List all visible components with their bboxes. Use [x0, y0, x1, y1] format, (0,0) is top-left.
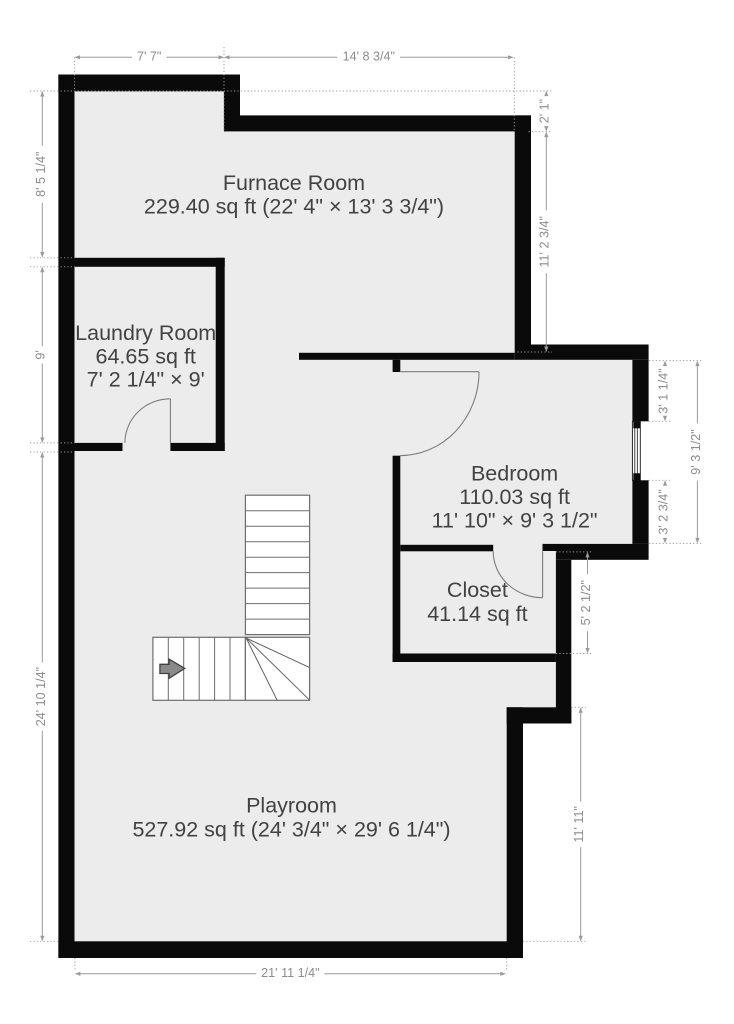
- svg-text:3' 2 3/4": 3' 2 3/4": [656, 489, 670, 534]
- svg-text:7' 7": 7' 7": [137, 50, 161, 64]
- svg-text:11' 10" × 9' 3 1/2": 11' 10" × 9' 3 1/2": [432, 508, 598, 532]
- svg-text:Bedroom: Bedroom: [471, 462, 558, 486]
- svg-text:21' 11 1/4": 21' 11 1/4": [261, 966, 319, 980]
- svg-text:Laundry Room: Laundry Room: [75, 321, 216, 345]
- svg-text:Closet: Closet: [447, 578, 508, 602]
- svg-text:229.40 sq ft (22' 4" × 13' 3 3: 229.40 sq ft (22' 4" × 13' 3 3/4"): [144, 195, 444, 219]
- svg-text:110.03 sq ft: 110.03 sq ft: [459, 485, 570, 509]
- svg-text:14' 8 3/4": 14' 8 3/4": [343, 50, 395, 64]
- svg-text:8' 5 1/4": 8' 5 1/4": [34, 152, 48, 197]
- svg-text:41.14 sq ft: 41.14 sq ft: [427, 602, 527, 626]
- svg-text:9': 9': [34, 350, 48, 359]
- svg-text:Furnace Room: Furnace Room: [223, 171, 365, 195]
- svg-text:24' 10 1/4": 24' 10 1/4": [34, 667, 48, 726]
- svg-text:64.65 sq ft: 64.65 sq ft: [95, 344, 195, 368]
- svg-text:Playroom: Playroom: [246, 794, 337, 818]
- svg-text:11' 11": 11' 11": [572, 806, 586, 843]
- svg-text:5' 2 1/2": 5' 2 1/2": [579, 580, 593, 625]
- svg-text:3' 1 1/4": 3' 1 1/4": [656, 368, 670, 413]
- svg-text:9' 3 1/2": 9' 3 1/2": [689, 429, 703, 474]
- svg-text:11' 2 3/4": 11' 2 3/4": [538, 216, 552, 267]
- svg-text:527.92 sq ft (24' 3/4" × 29' 6: 527.92 sq ft (24' 3/4" × 29' 6 1/4"): [132, 818, 450, 842]
- svg-text:2' 1": 2' 1": [538, 99, 552, 123]
- svg-text:7' 2 1/4" × 9': 7' 2 1/4" × 9': [87, 368, 205, 392]
